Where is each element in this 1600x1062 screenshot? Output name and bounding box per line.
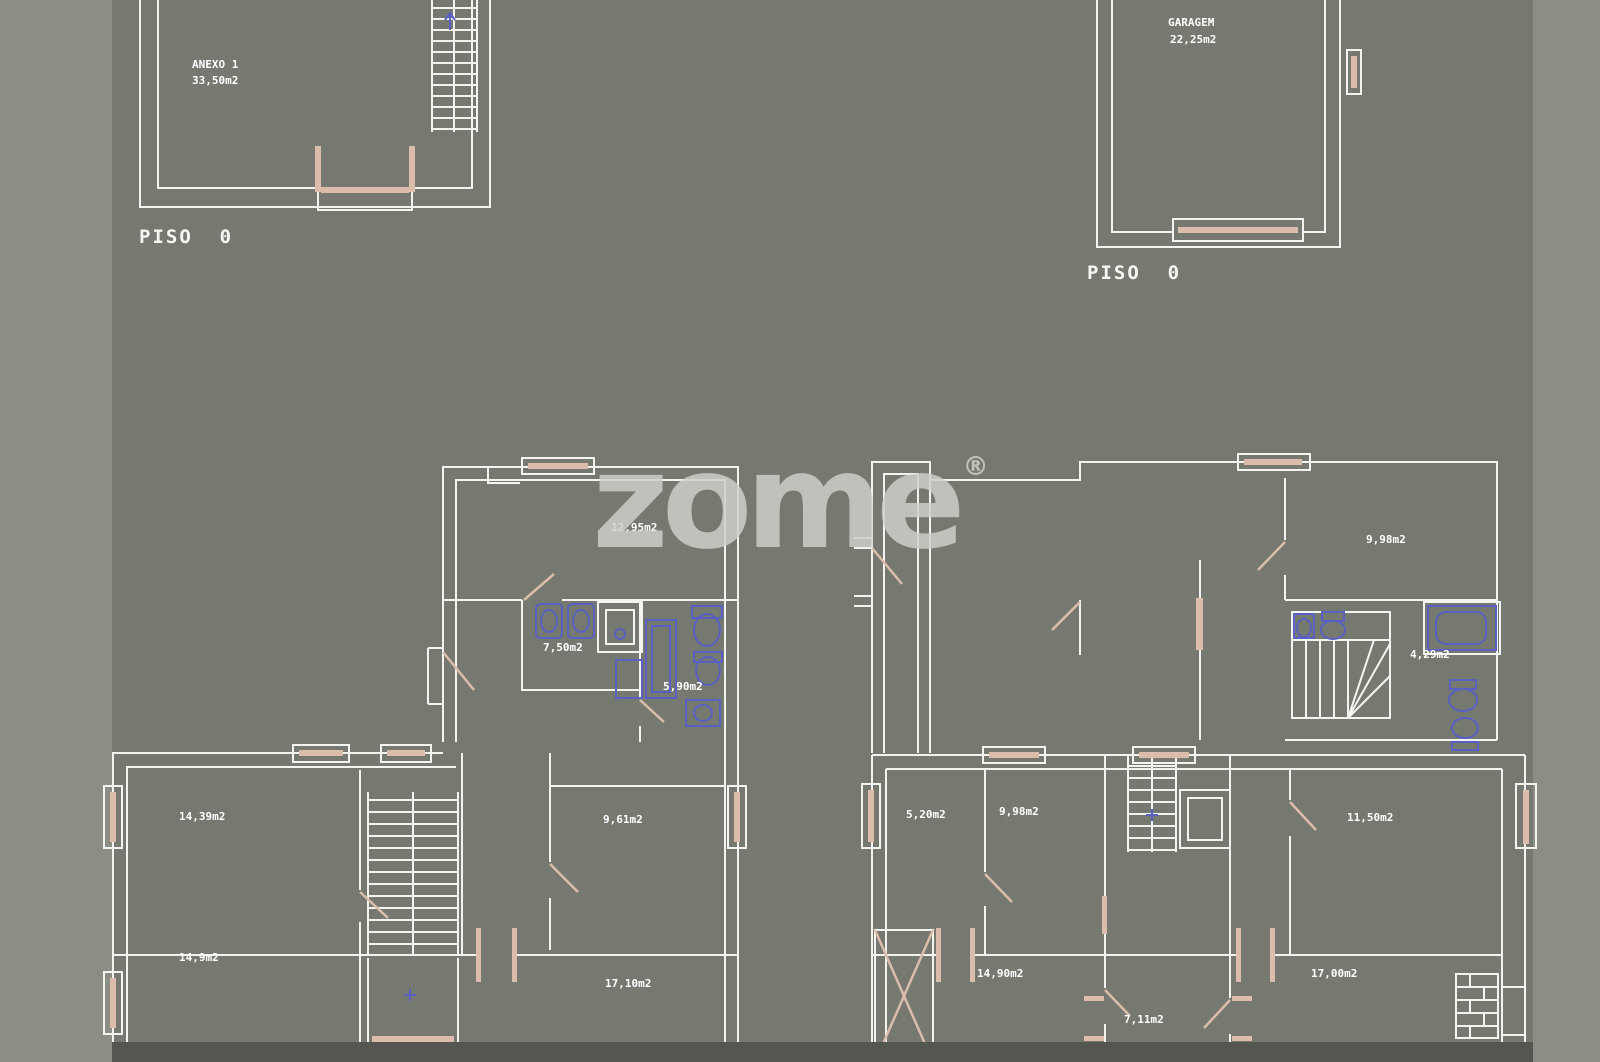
anexo-floor-label: PISO 0 xyxy=(139,226,233,248)
bathtub-icon xyxy=(1428,606,1496,650)
door-swing xyxy=(985,874,1012,902)
room-area-label: 14,39m2 xyxy=(179,810,225,823)
door-swing xyxy=(640,700,664,722)
room-area-label: 9,61m2 xyxy=(603,813,643,826)
room-area-label: 11,50m2 xyxy=(1347,811,1393,824)
winder-stairs xyxy=(1292,612,1390,718)
right-house-main-block xyxy=(862,747,1536,1062)
toilet-icon xyxy=(1321,612,1345,639)
garagem-floor-label: PISO 0 xyxy=(1087,262,1181,284)
door-jamb xyxy=(970,928,975,982)
bidet-icon xyxy=(1452,718,1478,750)
left-house-stairs xyxy=(368,792,458,1042)
basin-icon xyxy=(686,700,720,726)
room-area-label: 7,11m2 xyxy=(1124,1013,1164,1026)
door-jamb xyxy=(1270,928,1275,982)
door-jamb xyxy=(409,146,415,192)
room-area-label: 17,00m2 xyxy=(1311,967,1357,980)
door-jamb xyxy=(1084,1036,1104,1041)
toilet-icon xyxy=(692,606,722,646)
door-jamb xyxy=(1232,1036,1252,1041)
door-swing xyxy=(550,864,578,892)
sink-icon xyxy=(1294,614,1314,638)
floorplan-screenshot: ANEXO 1 33,50m2 PISO 0 GARAGEM 22,25m2 P… xyxy=(0,0,1600,1062)
door-jamb xyxy=(1236,928,1241,982)
shower-drain-icon xyxy=(615,629,625,639)
toilet-icon xyxy=(1449,680,1477,711)
door-jamb xyxy=(315,146,321,192)
room-area-label: 9,98m2 xyxy=(1366,533,1406,546)
zome-watermark: zome® xyxy=(592,436,989,568)
elevator-shaft xyxy=(1180,790,1230,848)
registered-trademark-icon: ® xyxy=(963,454,989,480)
door-jamb xyxy=(512,928,517,982)
anexo-room-area: 33,50m2 xyxy=(192,74,238,87)
right-house-upper-block xyxy=(930,454,1500,740)
garagem-room-name: GARAGEM xyxy=(1168,16,1214,29)
door-swing xyxy=(1290,802,1316,830)
left-house-main-block xyxy=(104,742,746,1062)
sink-icon xyxy=(536,604,594,638)
room-area-label: 7,50m2 xyxy=(543,641,583,654)
door-swing xyxy=(443,652,474,690)
garagem-plan-walls xyxy=(1097,0,1361,247)
watermark-brand-text: zome xyxy=(592,425,959,579)
door-jamb xyxy=(1084,996,1104,1001)
door-swing xyxy=(1258,542,1285,570)
bottom-crop-band xyxy=(112,1042,1533,1062)
washer-icon xyxy=(616,660,642,698)
stair-marker-icon xyxy=(404,989,416,1001)
room-area-label: 14,9m2 xyxy=(179,951,219,964)
garagem-room-area: 22,25m2 xyxy=(1170,33,1216,46)
room-area-label: 9,98m2 xyxy=(999,805,1039,818)
door-swing xyxy=(1052,602,1080,630)
room-area-label: 17,10m2 xyxy=(605,977,651,990)
door-jamb xyxy=(1102,896,1107,934)
door-swing xyxy=(1204,1000,1230,1028)
radiator-icon xyxy=(1456,974,1498,1038)
door-jamb xyxy=(1232,996,1252,1001)
door-jamb xyxy=(476,928,481,982)
room-area-label: 4,29m2 xyxy=(1410,648,1450,661)
anexo-room-name: ANEXO 1 xyxy=(192,58,238,71)
door-jamb xyxy=(1196,598,1203,650)
room-area-label: 5,90m2 xyxy=(663,680,703,693)
room-area-label: 5,20m2 xyxy=(906,808,946,821)
room-area-label: 14,90m2 xyxy=(977,967,1023,980)
door-swing xyxy=(524,574,554,600)
stair-marker-icon xyxy=(1146,809,1158,821)
door-jamb xyxy=(936,928,941,982)
